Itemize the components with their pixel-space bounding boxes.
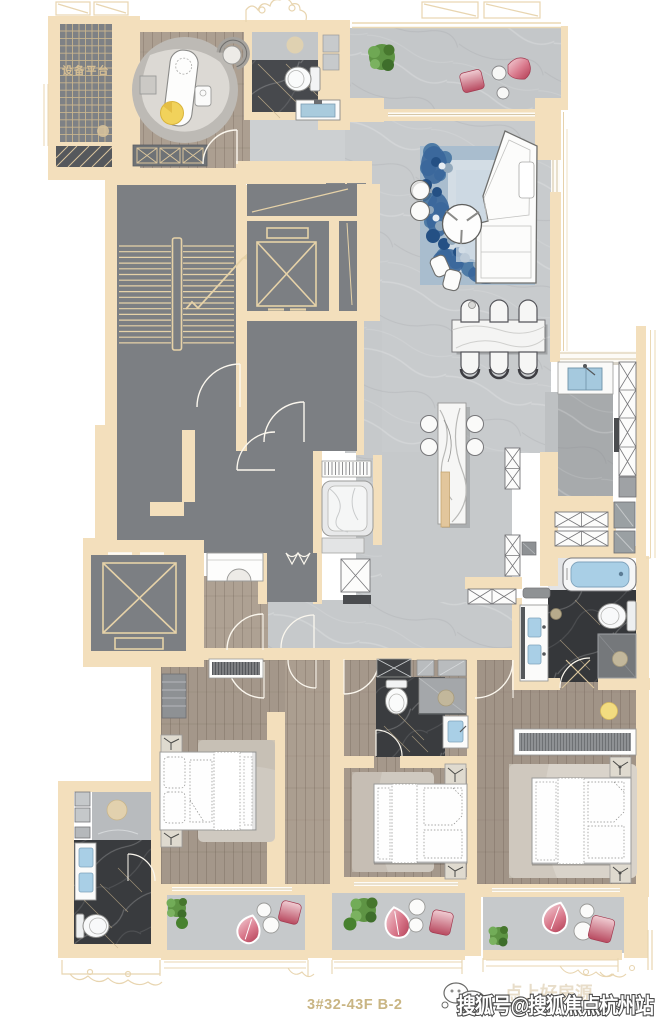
svg-text:3#32-43F B-2: 3#32-43F B-2: [307, 997, 402, 1013]
svg-text:搜狐号@搜狐焦点杭州站: 搜狐号@搜狐焦点杭州站: [457, 994, 654, 1018]
svg-text:设备平台: 设备平台: [62, 64, 110, 77]
